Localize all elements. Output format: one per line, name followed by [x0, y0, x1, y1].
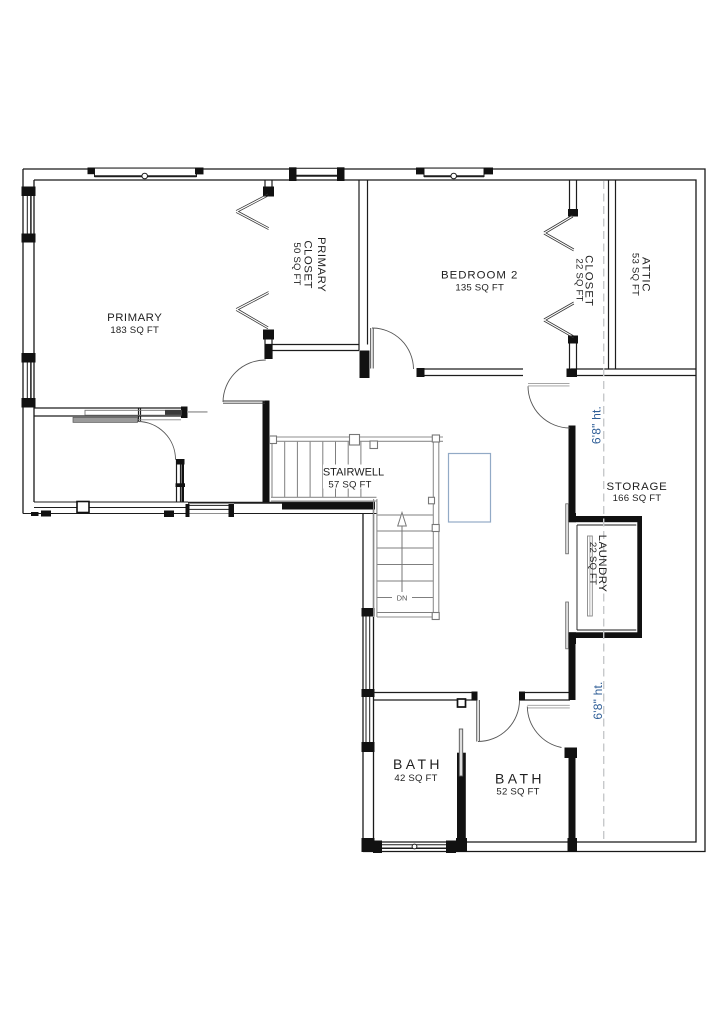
svg-text:BATH: BATH — [495, 771, 545, 787]
svg-text:50 SQ FT: 50 SQ FT — [291, 242, 302, 285]
svg-text:PRIMARY: PRIMARY — [107, 312, 162, 324]
svg-text:BEDROOM 2: BEDROOM 2 — [441, 269, 518, 281]
svg-text:57 SQ FT: 57 SQ FT — [328, 480, 371, 491]
svg-text:CLOSET: CLOSET — [302, 240, 314, 289]
svg-text:22 SQ FT: 22 SQ FT — [574, 258, 585, 301]
svg-text:PRIMARY: PRIMARY — [315, 237, 327, 292]
svg-text:STORAGE: STORAGE — [606, 481, 667, 493]
svg-text:135 SQ FT: 135 SQ FT — [455, 282, 504, 293]
svg-text:166 SQ FT: 166 SQ FT — [613, 493, 662, 504]
svg-text:DN: DN — [397, 594, 408, 603]
svg-text:6'8" ht.: 6'8" ht. — [591, 681, 605, 719]
svg-text:6'8" ht.: 6'8" ht. — [590, 406, 604, 444]
svg-text:BATH: BATH — [393, 756, 443, 772]
svg-text:42 SQ FT: 42 SQ FT — [394, 773, 437, 784]
svg-text:22 SQ FT: 22 SQ FT — [587, 542, 598, 585]
svg-text:183 SQ FT: 183 SQ FT — [110, 325, 159, 336]
svg-text:STAIRWELL: STAIRWELL — [323, 467, 384, 479]
svg-text:52 SQ FT: 52 SQ FT — [496, 787, 539, 798]
svg-text:53 SQ FT: 53 SQ FT — [630, 253, 641, 296]
